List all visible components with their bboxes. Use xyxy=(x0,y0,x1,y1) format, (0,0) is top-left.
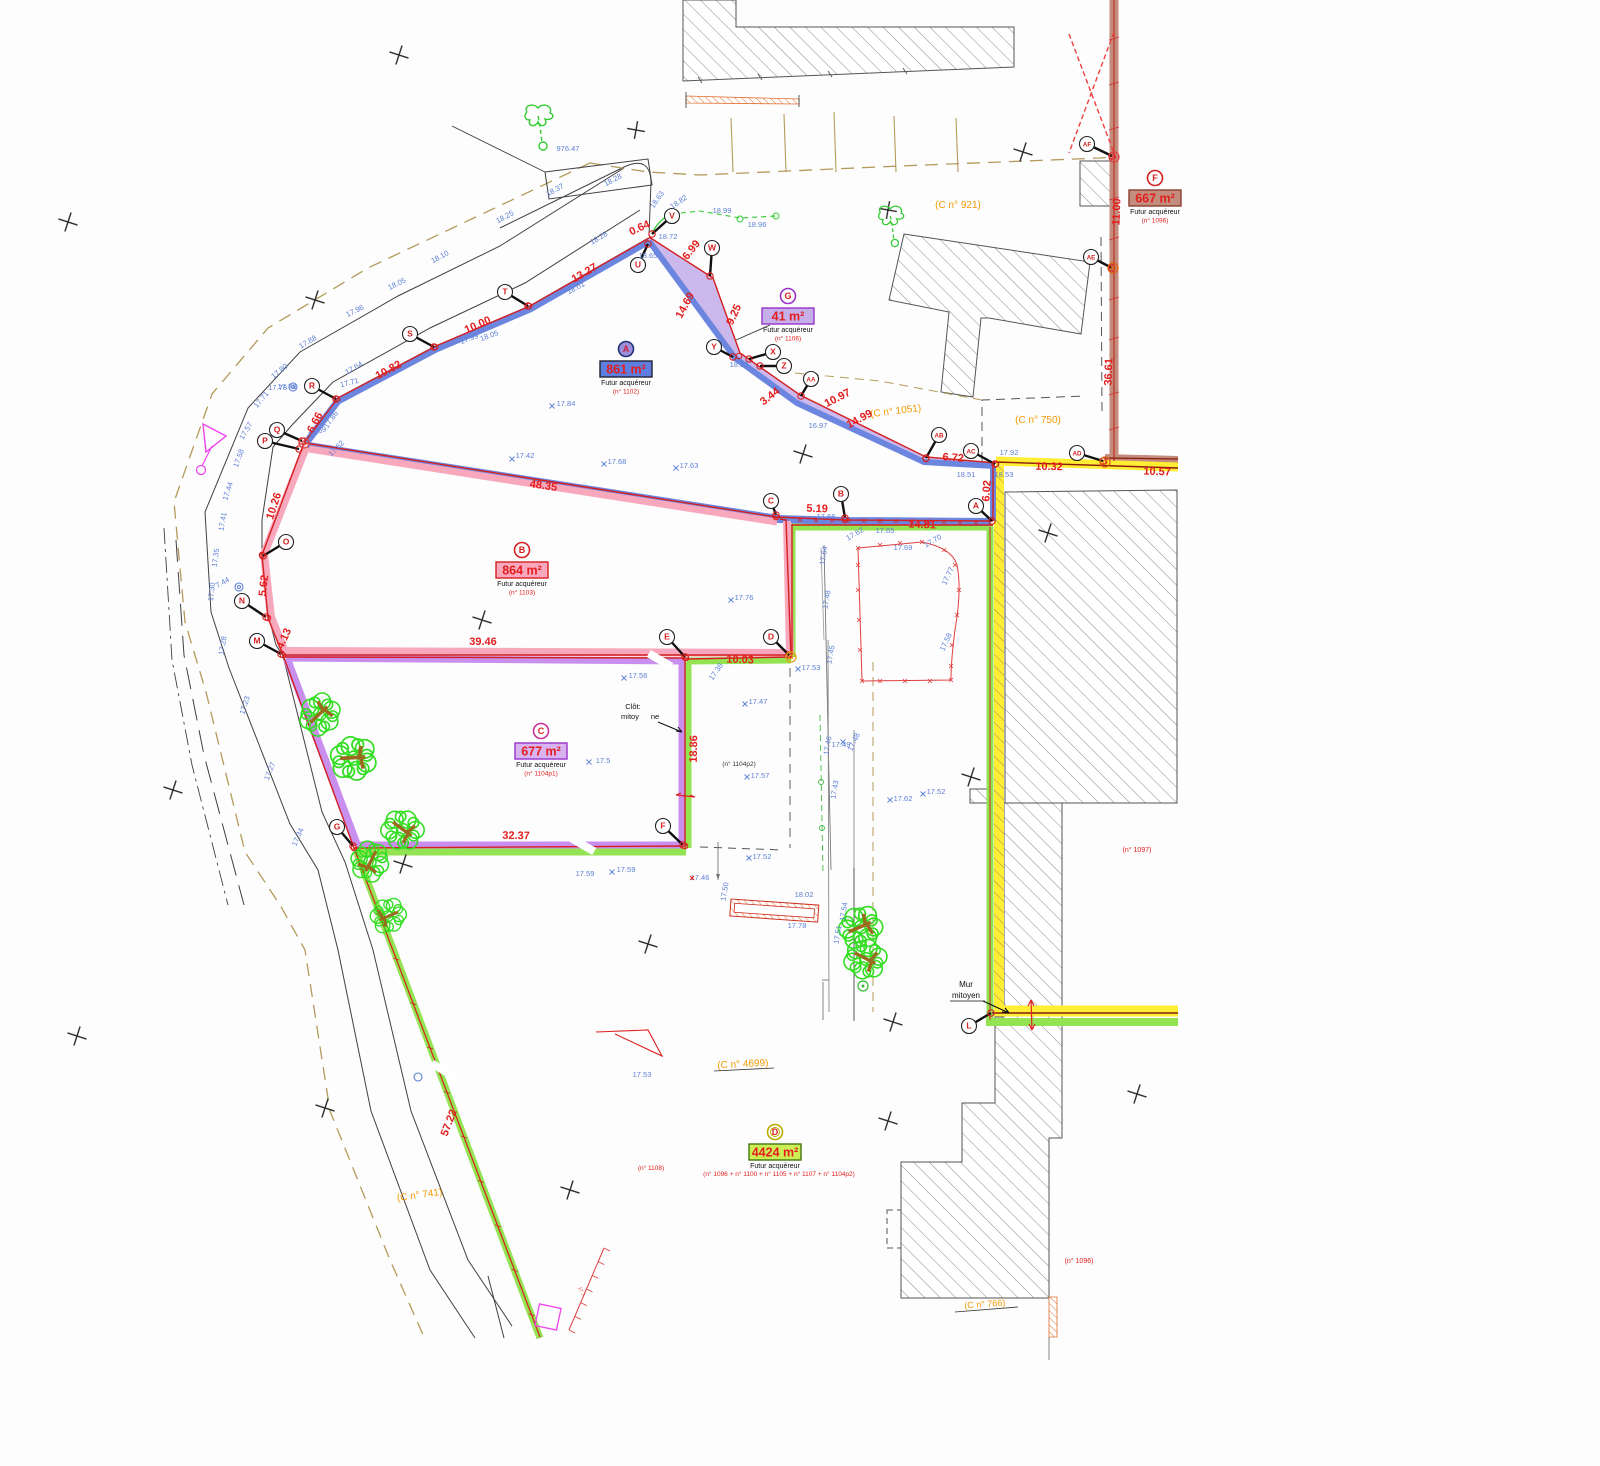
svg-text:17.65: 17.65 xyxy=(876,526,895,535)
svg-text:C: C xyxy=(538,726,545,736)
svg-text:17.76: 17.76 xyxy=(735,593,754,602)
svg-text:(n° 1104p1): (n° 1104p1) xyxy=(524,770,558,778)
svg-text:ne: ne xyxy=(651,712,659,721)
svg-text:D: D xyxy=(768,632,774,642)
svg-text:17.52: 17.52 xyxy=(927,787,946,796)
svg-text:17.5: 17.5 xyxy=(596,756,611,765)
svg-text:AE: AE xyxy=(1087,255,1096,262)
svg-text:(n° 1103): (n° 1103) xyxy=(509,589,535,597)
svg-text:(n° 1108): (n° 1108) xyxy=(638,1164,664,1172)
svg-text:C: C xyxy=(768,496,774,506)
svg-text:A: A xyxy=(973,501,979,511)
svg-text:(C n° 750): (C n° 750) xyxy=(1015,415,1061,426)
svg-text:R: R xyxy=(309,381,315,391)
svg-text:16.97: 16.97 xyxy=(809,421,828,430)
svg-text:Futur acquéreur: Futur acquéreur xyxy=(763,327,813,334)
svg-text:17.68: 17.68 xyxy=(608,457,627,466)
svg-text:17.59: 17.59 xyxy=(617,865,636,874)
svg-text:11.00: 11.00 xyxy=(1111,198,1124,225)
svg-text:AA: AA xyxy=(807,377,816,384)
svg-text:A: A xyxy=(623,344,630,354)
svg-text:976.47: 976.47 xyxy=(557,144,580,153)
svg-text:B: B xyxy=(519,545,526,555)
svg-text:G: G xyxy=(334,822,341,832)
svg-text:(n° 1096 + n° 1100 + n° 1105 +: (n° 1096 + n° 1100 + n° 1105 + n° 1107 +… xyxy=(703,1170,855,1178)
svg-text:(n° 1097): (n° 1097) xyxy=(1123,846,1152,854)
svg-text:17.92: 17.92 xyxy=(1000,448,1019,457)
svg-text:18.99: 18.99 xyxy=(713,206,732,215)
svg-text:17.59: 17.59 xyxy=(576,869,595,878)
svg-text:18.55: 18.55 xyxy=(730,360,749,369)
svg-text:Y: Y xyxy=(711,342,717,352)
svg-text:Q: Q xyxy=(274,425,281,435)
svg-text:4424 m²: 4424 m² xyxy=(752,1146,799,1160)
svg-text:18.72: 18.72 xyxy=(659,232,678,241)
svg-text:AD: AD xyxy=(1073,451,1082,458)
svg-text:6.72: 6.72 xyxy=(942,451,964,464)
svg-text:X: X xyxy=(770,347,776,357)
svg-text:6.02: 6.02 xyxy=(980,480,993,502)
svg-text:17.42: 17.42 xyxy=(516,451,535,460)
svg-text:17.56: 17.56 xyxy=(629,671,648,680)
svg-text:(n° 1102): (n° 1102) xyxy=(613,388,639,396)
svg-text:864 m²: 864 m² xyxy=(502,564,542,578)
svg-text:Clôt:: Clôt: xyxy=(625,702,640,711)
svg-text:Mur: Mur xyxy=(959,980,973,989)
svg-text:M: M xyxy=(253,636,260,646)
svg-text:Futur acquéreur: Futur acquéreur xyxy=(750,1163,800,1170)
svg-text:17.69: 17.69 xyxy=(894,543,913,552)
svg-text:Futur acquéreur: Futur acquéreur xyxy=(1130,209,1180,216)
svg-text:39.46: 39.46 xyxy=(469,636,497,648)
svg-text:(C n° 921): (C n° 921) xyxy=(935,200,981,211)
svg-text:W: W xyxy=(708,243,717,253)
svg-text:10.57: 10.57 xyxy=(1143,466,1171,479)
svg-text:861 m²: 861 m² xyxy=(606,363,646,377)
svg-text:F: F xyxy=(660,821,665,831)
svg-text:18.02: 18.02 xyxy=(795,890,814,899)
svg-text:17.78: 17.78 xyxy=(268,383,287,392)
svg-text:18.53: 18.53 xyxy=(995,470,1014,479)
svg-text:18.65: 18.65 xyxy=(639,251,658,260)
svg-text:L: L xyxy=(966,1021,971,1031)
svg-text:17.57: 17.57 xyxy=(751,771,770,780)
svg-text:41 m²: 41 m² xyxy=(772,310,805,324)
svg-text:17.47: 17.47 xyxy=(749,697,768,706)
svg-text:Futur acquéreur: Futur acquéreur xyxy=(601,380,651,387)
svg-text:U: U xyxy=(635,260,641,270)
svg-text:N: N xyxy=(239,596,245,606)
svg-text:F: F xyxy=(1152,173,1158,183)
svg-text:17.62: 17.62 xyxy=(894,794,913,803)
svg-text:Futur acquéreur: Futur acquéreur xyxy=(516,762,566,769)
svg-text:17.63: 17.63 xyxy=(680,461,699,470)
svg-text:G: G xyxy=(784,291,791,301)
svg-text:O: O xyxy=(283,537,290,547)
svg-text:E: E xyxy=(664,632,670,642)
svg-text:AB: AB xyxy=(935,433,944,440)
svg-text:17.53: 17.53 xyxy=(633,1070,652,1079)
svg-text:18.96: 18.96 xyxy=(748,220,767,229)
svg-text:667 m²: 667 m² xyxy=(1135,192,1175,206)
svg-text:(n° 1104p2): (n° 1104p2) xyxy=(722,760,756,768)
svg-text:14.81: 14.81 xyxy=(908,519,936,532)
svg-text:P: P xyxy=(262,436,268,446)
svg-text:17.52: 17.52 xyxy=(753,852,772,861)
svg-text:17.84: 17.84 xyxy=(557,399,576,408)
svg-text:18.86: 18.86 xyxy=(688,735,700,763)
svg-text:17.46: 17.46 xyxy=(691,873,710,882)
svg-text:T: T xyxy=(502,287,508,297)
svg-text:mitoy: mitoy xyxy=(621,712,639,721)
svg-text:10.32: 10.32 xyxy=(1035,461,1063,473)
svg-text:32.37: 32.37 xyxy=(502,830,530,842)
svg-text:B: B xyxy=(838,489,844,499)
svg-text:AC: AC xyxy=(967,449,976,456)
svg-text:17.78: 17.78 xyxy=(788,921,807,930)
svg-text:(n° 1096): (n° 1096) xyxy=(1142,217,1169,225)
svg-text:17.66: 17.66 xyxy=(817,512,836,521)
svg-text:Futur acquéreur: Futur acquéreur xyxy=(497,581,547,588)
svg-text:mitoyen: mitoyen xyxy=(952,991,980,1000)
svg-text:S: S xyxy=(407,329,413,339)
svg-text:(n° 1106): (n° 1106) xyxy=(775,335,801,343)
svg-text:677 m²: 677 m² xyxy=(521,745,561,759)
svg-text:18.51: 18.51 xyxy=(957,470,976,479)
svg-text:(n° 1096): (n° 1096) xyxy=(1065,1257,1094,1265)
svg-text:17.53: 17.53 xyxy=(802,663,821,672)
svg-text:36.61: 36.61 xyxy=(1103,358,1116,386)
svg-text:AF: AF xyxy=(1083,142,1091,149)
svg-text:Z: Z xyxy=(781,361,786,371)
svg-text:V: V xyxy=(669,211,675,221)
svg-text:10.03: 10.03 xyxy=(726,654,754,667)
